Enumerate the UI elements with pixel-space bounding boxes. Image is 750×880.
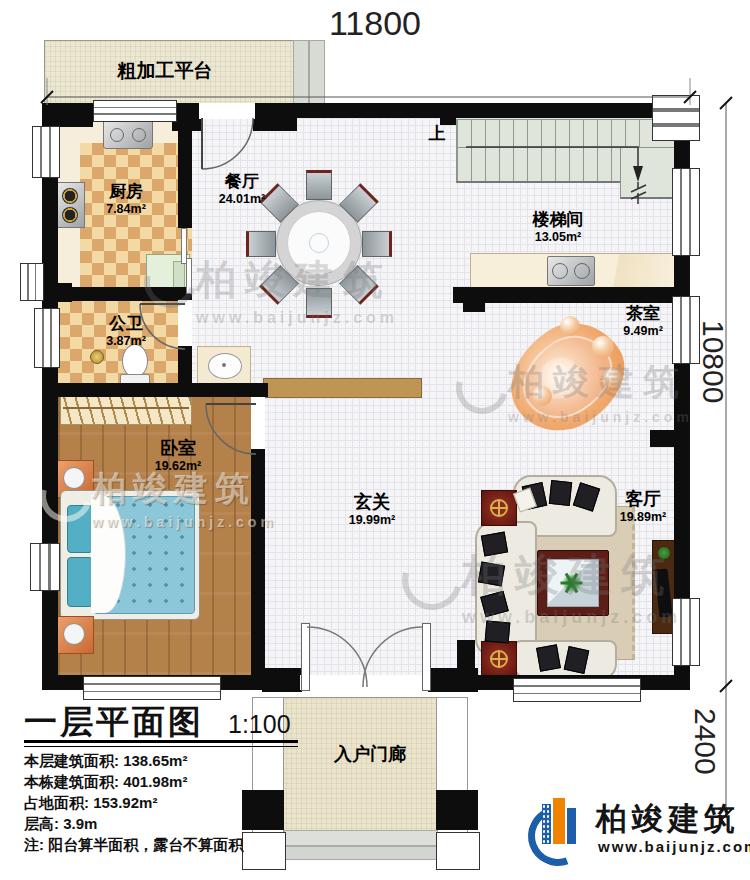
- coffee-table: [537, 550, 609, 616]
- wall-pier: [262, 668, 302, 692]
- window: [652, 95, 700, 141]
- sofa-cushion: [549, 480, 572, 506]
- entrance-door-leaf: [422, 623, 431, 691]
- tea-stool: [532, 386, 552, 406]
- wall-pier: [42, 283, 72, 302]
- stairwell-label: 楼梯间 13.05m²: [508, 210, 608, 244]
- window: [513, 678, 641, 702]
- tea-stool: [592, 336, 614, 358]
- wardrobe: [60, 393, 192, 425]
- platform-gray-panel: [293, 40, 309, 105]
- window: [34, 308, 60, 368]
- stat-floor-area: 本层建筑面积: 138.65m²: [24, 752, 187, 771]
- wall-pier: [253, 103, 297, 131]
- stair-flight: [456, 119, 650, 149]
- plan-title: 一层平面图: [24, 700, 204, 745]
- entrance-door-leaf: [301, 623, 310, 691]
- bedroom-door-opening: [251, 397, 265, 449]
- dining-label: 餐厅 24.01m²: [192, 172, 292, 206]
- dimension-right-upper: 10800: [696, 320, 730, 403]
- kitchen-label: 厨房 7.84m²: [76, 182, 176, 216]
- bed: [60, 490, 200, 620]
- porch-pillar-base: [436, 832, 480, 870]
- porch-pillar-base: [242, 832, 286, 870]
- stat-building-area: 本栋建筑面积: 401.98m²: [24, 773, 187, 792]
- living-label: 客厅 19.89m²: [593, 489, 693, 524]
- stat-footprint-area: 占地面积: 153.92m²: [24, 794, 157, 813]
- title-underline: [24, 746, 298, 747]
- side-table: [481, 490, 517, 526]
- sofa-cushion: [478, 562, 505, 587]
- hall-label: 玄关 19.99m²: [322, 492, 422, 527]
- stat-floor-height: 层高: 3.9m: [24, 815, 97, 834]
- stair-flight: [456, 147, 622, 183]
- platform-gray-panel: [309, 40, 325, 105]
- bathroom-label: 公卫 3.87m²: [76, 314, 176, 348]
- porch-pillar: [436, 790, 478, 830]
- window: [32, 126, 60, 178]
- window: [30, 543, 60, 591]
- kitchen-sink: [103, 119, 153, 149]
- wall-pier: [428, 668, 478, 692]
- window: [672, 598, 700, 666]
- brand-logo-icon: [528, 798, 586, 860]
- wood-partition: [263, 378, 422, 398]
- entrance-opening: [300, 675, 430, 690]
- tea-stool: [560, 316, 580, 336]
- dining-chair: [306, 288, 332, 318]
- title-underline: [24, 740, 298, 743]
- door-opening: [199, 103, 255, 119]
- porch-step: [284, 846, 438, 860]
- wall: [42, 383, 268, 397]
- porch-label: 入户门廊: [300, 744, 440, 765]
- plan-scale: 1:100: [228, 710, 291, 739]
- wall: [251, 448, 265, 676]
- tea-counter-sink: [547, 256, 595, 286]
- wall-pier: [45, 103, 93, 127]
- window: [93, 100, 177, 122]
- stat-note: 注: 阳台算半面积，露台不算面积: [24, 836, 243, 855]
- side-table: [481, 641, 517, 677]
- porch-pillar: [242, 790, 284, 830]
- sofa-cushion: [536, 644, 561, 671]
- porch-step: [284, 830, 438, 846]
- dining-chair: [306, 170, 332, 200]
- hall-basin-counter: [197, 346, 251, 384]
- wall: [453, 287, 690, 303]
- sofa-cushion: [481, 532, 508, 557]
- dimension-top: 11800: [300, 4, 450, 43]
- toilet-brush: [90, 350, 104, 364]
- window: [20, 263, 44, 301]
- platform-label: 粗加工平台: [95, 60, 235, 82]
- wall-pier: [463, 303, 485, 312]
- outer-wall-left: [42, 103, 58, 690]
- sofa-cushion: [485, 620, 511, 643]
- bedroom-label: 卧室 19.62m²: [128, 438, 228, 473]
- dimension-right-lower: 2400: [688, 708, 722, 775]
- plant: [562, 573, 582, 593]
- kitchen-sliding-door: [186, 258, 192, 294]
- nightstand: [56, 616, 94, 654]
- stairs-up-label: 上: [424, 124, 450, 144]
- window: [83, 676, 221, 700]
- dining-chair: [362, 231, 392, 257]
- tearoom-label: 茶室 9.49m²: [593, 304, 693, 338]
- tea-stool: [602, 368, 622, 388]
- brand-name: 柏竣建筑: [596, 798, 740, 840]
- dining-chair: [246, 231, 276, 257]
- brand-url: www.baijunjz.com: [598, 838, 750, 855]
- floor-plan-canvas: 11800 10800 2400 粗加工平台 厨房 7.84m² 公卫 3.87…: [0, 0, 750, 880]
- bathroom-door-opening: [178, 300, 192, 346]
- window: [672, 168, 700, 256]
